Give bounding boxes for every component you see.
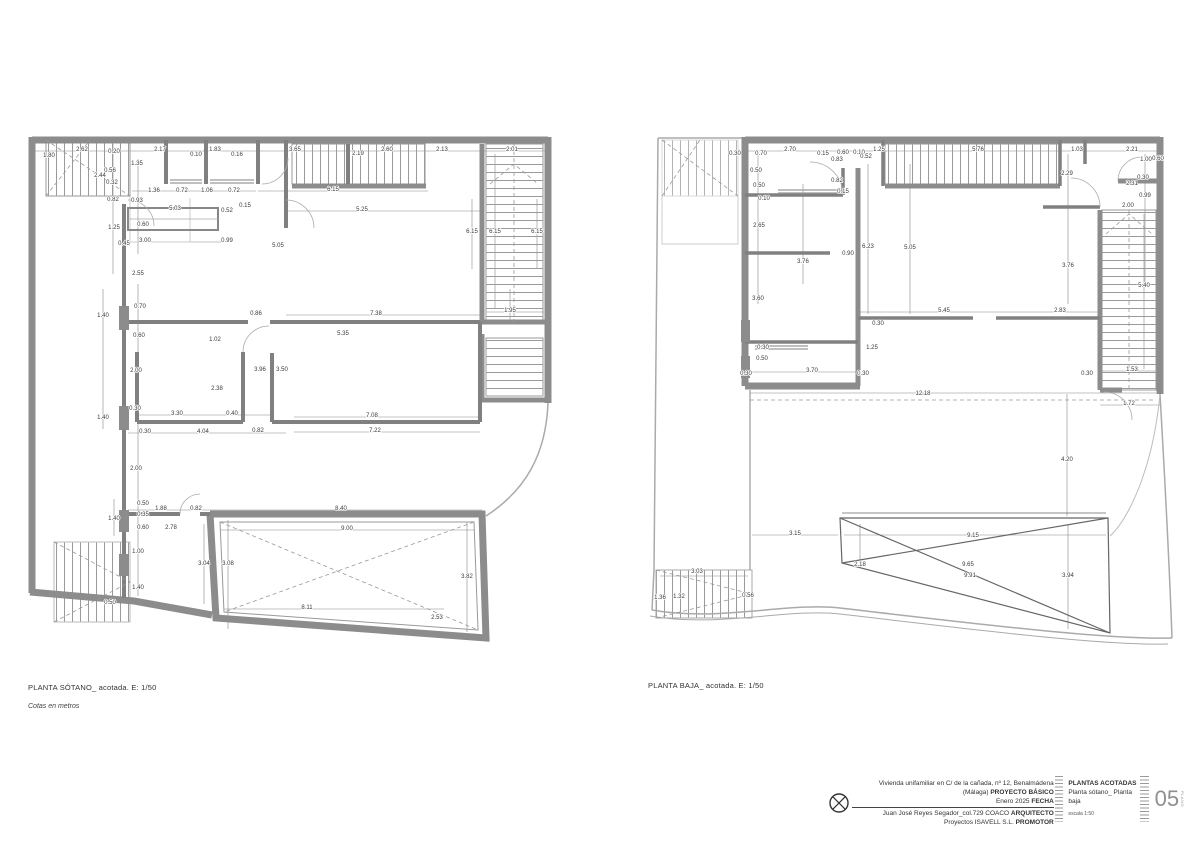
garage-ramp [1102, 210, 1156, 390]
drawing-sheet: { "colors":{"wall":"#8c8c8c","interior_w… [0, 0, 1200, 850]
dimension-value: 0.99 [1139, 193, 1151, 199]
dimension-value: 2.44 [94, 173, 106, 179]
dimension-value: 1.35 [131, 161, 143, 167]
dimension-value: 0.30 [872, 321, 884, 327]
dimension-value: 5.05 [904, 245, 916, 251]
dimension-value: 0.52 [221, 208, 233, 214]
stair-top [292, 144, 425, 184]
dimension-value: 0.10 [758, 196, 770, 202]
dimension-value: 2.00 [130, 368, 142, 374]
units-note: Cotas en metros [28, 703, 79, 710]
sheet-number: 05 [1155, 788, 1179, 810]
dimension-value: 0.32 [106, 180, 118, 186]
dimension-value: 2.29 [1061, 171, 1073, 177]
title-block-divider [852, 807, 1054, 808]
sheet-number-area: 05 PLANO [1150, 776, 1190, 822]
dimension-value: 0.30 [129, 406, 141, 412]
dimension-value: 4.04 [197, 429, 209, 435]
dimension-value: 2.18 [854, 562, 866, 568]
dimension-value: 2.78 [165, 525, 177, 531]
dimension-value: 3.76 [1062, 263, 1074, 269]
dimension-value: 2.19 [352, 151, 364, 157]
dimension-value: 0.60 [137, 222, 149, 228]
dimension-value: 0.99 [221, 238, 233, 244]
dimension-value: 2.65 [753, 223, 765, 229]
dimension-value: 1.25 [866, 345, 878, 351]
dimension-value: 9.65 [962, 562, 974, 568]
dimension-value: 0.50 [750, 168, 762, 174]
dimension-value: 2.38 [211, 386, 223, 392]
project-line: Vivienda unifamiliar en C/ de la cañada,… [852, 779, 1054, 797]
dimension-value: 2.17 [154, 147, 166, 153]
dimension-value: 5.76 [972, 147, 984, 153]
binding-strip-icon [1055, 776, 1064, 822]
sheet-title-area: PLANTAS ACOTADAS Planta sótano_ Planta b… [1064, 776, 1139, 822]
dimension-value: 9.15 [967, 533, 979, 539]
dimension-value: 0.16 [231, 152, 243, 158]
basement-plan-title: PLANTA SÓTANO_ acotada. E: 1/50 [28, 683, 156, 692]
dimension-value: 1.40 [97, 415, 109, 421]
dimension-value: 0.60 [837, 150, 849, 156]
dimension-value: 6.15 [466, 229, 478, 235]
dimension-value: 0.40 [226, 411, 238, 417]
dimension-value: 0.60 [137, 525, 149, 531]
dimension-value: 2.13 [436, 147, 448, 153]
dimension-value: 0.56 [742, 593, 754, 599]
dimension-value: 0.52 [860, 154, 872, 160]
dimension-value: 0.56 [104, 168, 116, 174]
sheet-number-side-label: PLANO [1180, 791, 1185, 807]
dimension-value: 0.82 [190, 506, 202, 512]
dimension-value: 2.31 [1126, 181, 1138, 187]
dimension-value: 0.83 [831, 157, 843, 163]
dimension-value: 4.20 [1061, 457, 1073, 463]
dimension-value: 0.72 [176, 188, 188, 194]
dimension-value: 7.38 [370, 311, 382, 317]
dimension-value: 3.30 [171, 411, 183, 417]
binding-strip-icon [1140, 776, 1149, 822]
promoter-label: PROMOTOR [1016, 819, 1054, 826]
ground-floor-plan: 0.300.702.700.150.600.101.250.830.520.50… [648, 124, 1188, 664]
dimension-value: 2.53 [431, 615, 443, 621]
architect-line: Juan José Reyes Segador_col.729 COACO AR… [852, 809, 1054, 818]
architect-label: ARQUITECTO [1011, 810, 1054, 817]
dimension-value: 1.06 [201, 188, 213, 194]
dimension-value: 0.30 [740, 371, 752, 377]
dimension-value: 0.82 [831, 178, 843, 184]
dimension-value: 3.15 [789, 531, 801, 537]
dimension-value: 0.60 [133, 333, 145, 339]
dimension-value: 7.08 [366, 413, 378, 419]
dimension-value: 3.04 [198, 561, 210, 567]
dimension-value: 0.30 [1081, 371, 1093, 377]
dimension-value: 5.05 [272, 243, 284, 249]
dimension-value: 0.10 [190, 152, 202, 158]
dimension-value: 5.25 [356, 207, 368, 213]
dimension-value: 9.00 [341, 526, 353, 532]
unexcavated-area [220, 522, 478, 630]
dimension-value: 0.90 [842, 251, 854, 257]
dimension-value: 1.53 [1126, 367, 1138, 373]
dimension-value: 0.50 [104, 600, 116, 606]
dimension-value: 0.93 [131, 198, 143, 204]
ground-plan-title: PLANTA BAJA_ acotada. E: 1/50 [648, 681, 764, 690]
dimension-value: 2.00 [1122, 203, 1134, 209]
north-symbol-icon [826, 779, 852, 822]
dimension-value: 0.82 [107, 197, 119, 203]
dimension-value: 1.88 [155, 506, 167, 512]
dimension-value: 9.91 [964, 573, 976, 579]
dimension-value: 2.70 [784, 147, 796, 153]
dimension-value: 0.70 [755, 151, 767, 157]
dimension-lines [660, 151, 1160, 629]
dimension-value: 1.36 [654, 595, 666, 601]
dimension-value: 0.15 [837, 189, 849, 195]
dimension-value: 3.76 [797, 259, 809, 265]
dimension-value: 3.00 [139, 238, 151, 244]
dimension-value: 2.83 [1054, 308, 1066, 314]
dimension-value: 6.15 [531, 229, 543, 235]
dimension-value: 0.30 [857, 371, 869, 377]
dimension-value: 1.25 [108, 225, 120, 231]
dimension-value: 1.72 [1123, 401, 1135, 407]
dimension-value: 1.00 [1140, 157, 1152, 163]
dimension-value: 5.03 [169, 206, 181, 212]
date-line: Enero 2025 FECHA [852, 797, 1054, 806]
dimension-value: 3.94 [1062, 573, 1074, 579]
dimension-value: 0.45 [118, 241, 130, 247]
dimension-value: 2.21 [1126, 147, 1138, 153]
dimension-value: 3.82 [461, 574, 473, 580]
dimension-value: 0.15 [239, 203, 251, 209]
dimension-value: 5.35 [337, 331, 349, 337]
dimension-value: 3.70 [806, 368, 818, 374]
dimension-value: 3.65 [289, 147, 301, 153]
dimension-value: 0.70 [134, 304, 146, 310]
dimension-value: 2.62 [76, 147, 88, 153]
dimension-value: 1.36 [148, 188, 160, 194]
dimension-value: 0.35 [137, 512, 149, 518]
date-text: Enero 2025 [996, 798, 1030, 805]
dimension-value: 2.01 [506, 147, 518, 153]
plot-boundary [486, 403, 548, 516]
dimension-value: 0.72 [228, 188, 240, 194]
dimension-value: 8.40 [335, 506, 347, 512]
dimension-value: 0.60 [1152, 156, 1164, 162]
dimension-value: 1.32 [673, 594, 685, 600]
dimension-value: 3.50 [276, 367, 288, 373]
dimension-value: 3.96 [254, 367, 266, 373]
dimension-value: 3.60 [752, 296, 764, 302]
dimension-value: 6.15 [327, 187, 339, 193]
promoter-text: Proyectos ISAVELL S.L. [944, 819, 1014, 826]
title-block: Vivienda unifamiliar en C/ de la cañada,… [826, 776, 1190, 822]
dimension-value: 2.60 [381, 147, 393, 153]
promoter-line: Proyectos ISAVELL S.L. PROMOTOR [852, 818, 1054, 827]
basement-floor-plan: 2.620.201.802.171.830.100.163.651.350.56… [24, 124, 569, 644]
dimension-value: 5.40 [1138, 283, 1150, 289]
dimension-value: 1.95 [504, 308, 516, 314]
dimension-value: 6.15 [489, 229, 501, 235]
dimension-value: 0.20 [108, 149, 120, 155]
dimension-value: 0.50 [753, 183, 765, 189]
dimension-value: 0.30 [139, 429, 151, 435]
dimension-value: 0.30 [757, 345, 769, 351]
plot-boundary [650, 138, 1172, 644]
architect-text: Juan José Reyes Segador_col.729 COACO [883, 810, 1009, 817]
dimension-value: 0.30 [729, 151, 741, 157]
dimension-value: 1.02 [209, 337, 221, 343]
dimension-value: 1.40 [108, 516, 120, 522]
dimension-value: 1.25 [873, 147, 885, 153]
sheet-title: PLANTAS ACOTADAS [1068, 779, 1139, 788]
project-label: PROYECTO BÁSICO [990, 789, 1053, 796]
dimension-value: 0.30 [1137, 175, 1149, 181]
dimension-value: 1.83 [209, 147, 221, 153]
window-sills [755, 190, 840, 349]
dimension-value: 1.40 [97, 313, 109, 319]
sheet-scale: escala 1:50 [1068, 810, 1094, 819]
dimension-value: 1.03 [1071, 147, 1083, 153]
stair-right [486, 338, 543, 396]
dimension-value: 7.22 [369, 428, 381, 434]
date-label: FECHA [1031, 798, 1053, 805]
dimension-value: 1.00 [132, 549, 144, 555]
dimension-value: 2.55 [132, 271, 144, 277]
dimension-value: 3.03 [691, 569, 703, 575]
dimension-value: 0.50 [137, 501, 149, 507]
exterior-stair-bottom [656, 570, 752, 618]
exterior-stair [54, 542, 130, 622]
window-sills [170, 180, 254, 183]
sheet-subtitle: Planta sótano_ Planta baja [1068, 788, 1139, 806]
dimension-value: 12.18 [915, 391, 931, 397]
title-block-project-area: Vivienda unifamiliar en C/ de la cañada,… [826, 776, 1054, 822]
dimension-value: 0.50 [756, 356, 768, 362]
dimension-value: 0.15 [817, 151, 829, 157]
dimension-value: 6.23 [862, 244, 874, 250]
dimension-value: 8.11 [301, 605, 313, 611]
dimension-value: 3.08 [222, 561, 234, 567]
stair-landing [662, 196, 738, 244]
dimension-value: 1.40 [132, 585, 144, 591]
dimension-value: 5.45 [938, 308, 950, 314]
dimension-value: 0.86 [250, 311, 262, 317]
dimension-value: 2.00 [130, 466, 142, 472]
dimension-value: 1.80 [43, 153, 55, 159]
dimension-value: 0.82 [252, 428, 264, 434]
